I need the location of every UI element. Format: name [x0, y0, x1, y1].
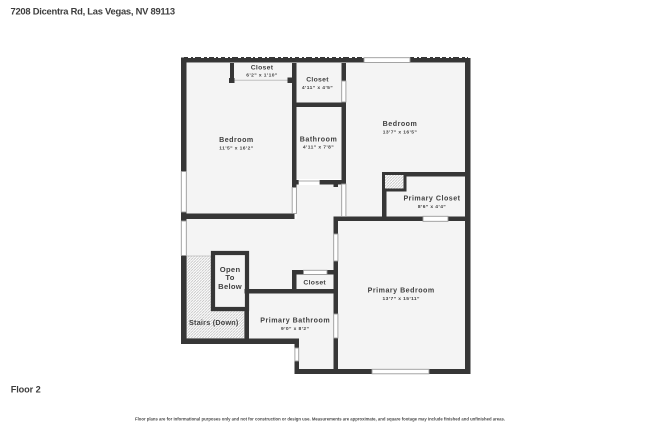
svg-text:4’11” x 7’8”: 4’11” x 7’8” [303, 145, 334, 151]
svg-text:Bathroom: Bathroom [300, 136, 338, 144]
svg-text:Primary Closet: Primary Closet [403, 194, 460, 202]
svg-text:Closet: Closet [306, 76, 329, 83]
svg-text:Floor 2: Floor 2 [11, 385, 41, 395]
svg-text:Closet: Closet [251, 65, 274, 72]
svg-text:Stairs (Down): Stairs (Down) [189, 318, 239, 327]
svg-text:9’0” x 8’2”: 9’0” x 8’2” [281, 326, 309, 332]
svg-text:Bedroom: Bedroom [383, 120, 418, 128]
svg-text:7208 Dicentra Rd, Las Vegas, N: 7208 Dicentra Rd, Las Vegas, NV 89113 [11, 5, 175, 16]
svg-text:8’6” x 4’4”: 8’6” x 4’4” [418, 204, 446, 210]
svg-text:6’2” x 1’10”: 6’2” x 1’10” [246, 73, 278, 79]
svg-text:13’7” x 16’5”: 13’7” x 16’5” [383, 130, 418, 136]
svg-text:Below: Below [218, 282, 242, 291]
svg-text:Closet: Closet [303, 280, 326, 287]
svg-text:13’7” x 15’11”: 13’7” x 15’11” [382, 296, 420, 302]
svg-text:Primary Bathroom: Primary Bathroom [260, 317, 330, 325]
svg-text:4’11” x 4’5”: 4’11” x 4’5” [302, 85, 333, 91]
svg-text:Floor plans are for informatio: Floor plans are for informational purpos… [135, 417, 505, 422]
svg-text:Bedroom: Bedroom [219, 136, 254, 144]
svg-text:11’5” x 16’2”: 11’5” x 16’2” [219, 145, 253, 151]
svg-text:To: To [225, 273, 234, 282]
svg-text:Primary Bedroom: Primary Bedroom [368, 287, 435, 295]
